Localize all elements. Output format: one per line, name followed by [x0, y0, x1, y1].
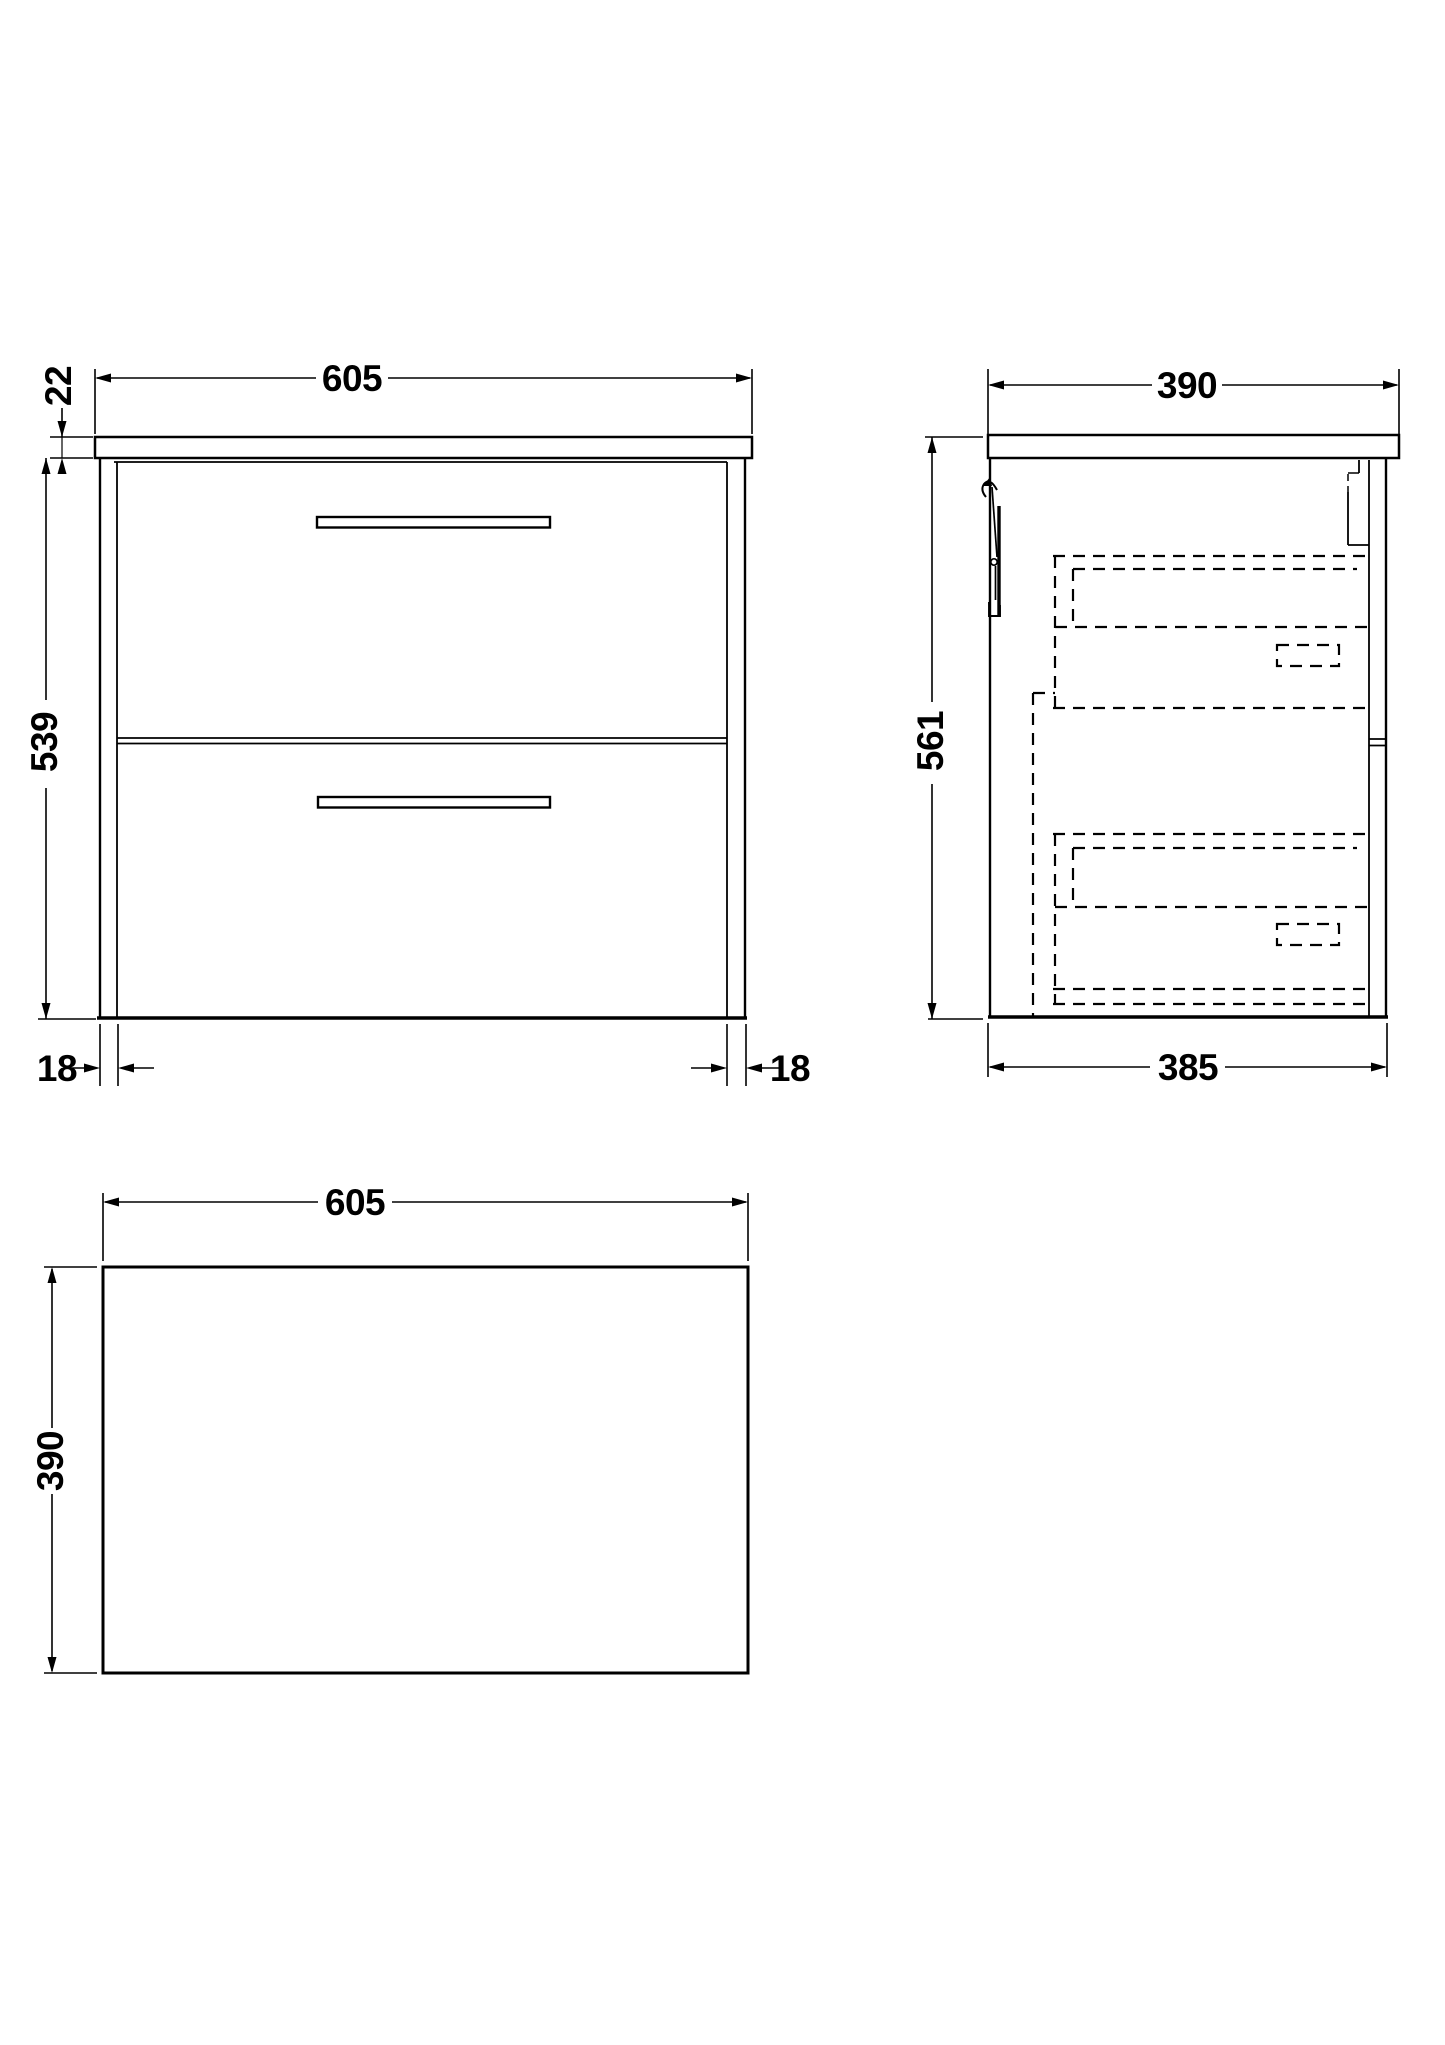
technical-drawing-page: 605 22 539 18 [0, 0, 1445, 2045]
plan-worktop-outline [103, 1267, 748, 1673]
dim-arrow [118, 1064, 134, 1073]
dim-label-cabinet-height: 539 [24, 712, 65, 772]
side-worktop [988, 435, 1399, 458]
dim-arrow [58, 421, 67, 437]
dim-arrow [732, 1198, 748, 1207]
hanging-rail-profile [1348, 460, 1369, 545]
lower-drawer-handle [318, 797, 550, 808]
dim-label-side-bottom-depth: 385 [1158, 1047, 1218, 1088]
plan-view: 605 390 [30, 1182, 748, 1673]
dim-arrow [736, 374, 752, 383]
dim-arrow [42, 1003, 51, 1019]
dim-arrow [1383, 381, 1399, 390]
hidden-drawer-outlines [1033, 556, 1367, 1016]
dim-arrow [48, 1657, 57, 1673]
drawing-canvas: 605 22 539 18 [0, 0, 1445, 2045]
dim-plan-width: 605 [103, 1182, 748, 1261]
dim-label-panel-right: 18 [770, 1048, 810, 1089]
dim-panel-left: 18 [37, 1024, 154, 1089]
dim-arrow [48, 1267, 57, 1283]
dim-label-side-height: 561 [910, 711, 951, 771]
bracket-pivot [991, 559, 997, 565]
dim-arrow [988, 381, 1004, 390]
dim-arrow [928, 437, 937, 453]
dim-plan-depth: 390 [30, 1267, 97, 1673]
dim-arrow [103, 1198, 119, 1207]
dim-panel-right: 18 [691, 1024, 810, 1089]
dim-front-width: 605 [95, 358, 752, 434]
side-section-view: 390 561 385 [910, 365, 1399, 1088]
dim-label-plan-width: 605 [325, 1182, 385, 1223]
front-elevation-view: 605 22 539 18 [24, 358, 810, 1089]
dim-label-plan-depth: 390 [30, 1431, 71, 1491]
upper-drawer-handle [317, 517, 550, 528]
dim-label-worktop-thickness: 22 [38, 366, 79, 406]
upper-drawer-runner [1277, 645, 1339, 666]
dim-arrow [988, 1063, 1004, 1072]
dim-side-height: 561 [910, 437, 983, 1019]
dim-arrow [84, 1064, 100, 1073]
dim-arrow [1371, 1063, 1387, 1072]
dim-arrow [928, 1003, 937, 1019]
dim-arrow [746, 1064, 762, 1073]
dim-arrow [95, 374, 111, 383]
dim-label-front-width: 605 [322, 358, 382, 399]
front-worktop [95, 437, 752, 458]
dim-arrow [58, 458, 67, 474]
lower-drawer-runner [1277, 924, 1339, 945]
dim-cabinet-height: 539 [24, 458, 96, 1019]
dim-arrow [42, 458, 51, 474]
dim-side-bottom-depth: 385 [988, 1023, 1387, 1088]
dim-worktop-thickness: 22 [38, 366, 93, 474]
dim-side-depth: 390 [988, 365, 1399, 434]
dim-label-side-depth: 390 [1157, 365, 1217, 406]
dim-arrow [711, 1064, 727, 1073]
dim-label-panel-left: 18 [37, 1048, 77, 1089]
